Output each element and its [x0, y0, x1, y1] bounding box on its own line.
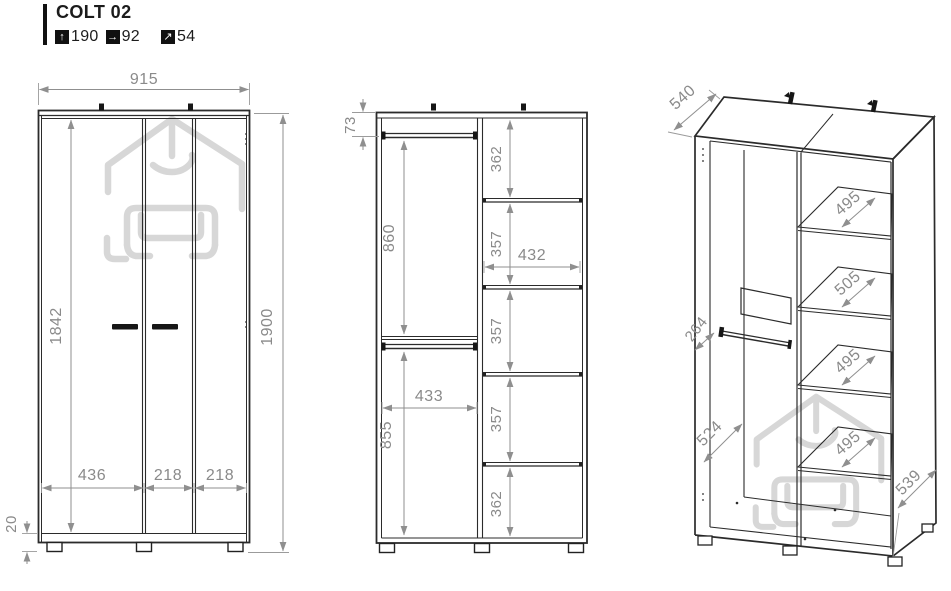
feet [47, 543, 243, 552]
dim-doors: 436 218 218 [42, 467, 247, 493]
dim-upper-height: 860 [381, 141, 404, 334]
dim-side-depth: 524 [694, 418, 742, 462]
dim-door3-label: 218 [206, 467, 234, 484]
top-pegs [784, 92, 878, 113]
dim-spacing-4: 357 [488, 406, 505, 433]
spec-depth-value: 54 [177, 28, 195, 46]
technical-drawing-page: COLT 02 ↑ 190 → 92 ↗ 54 [0, 0, 951, 591]
dim-bottom-depth-label: 539 [893, 467, 925, 499]
dim-interior-height: 1842 [48, 120, 71, 532]
dim-shelf-depths: 495 505 495 495 [832, 188, 875, 467]
dim-lower-height-label: 855 [378, 421, 395, 449]
dim-interior-height-label: 1842 [48, 307, 65, 345]
front-view: 915 1900 1842 436 218 218 [0, 55, 330, 591]
dim-rod-offset-label: 73 [342, 116, 359, 134]
dim-total-height-label: 1900 [259, 308, 276, 346]
spec-width: → 92 [106, 28, 140, 46]
title-rule [43, 4, 47, 45]
feet [698, 524, 933, 566]
dim-door2-label: 218 [154, 467, 182, 484]
dim-shelf3-label: 495 [832, 346, 864, 377]
dim-width-label: 915 [130, 71, 158, 88]
interior-cabinet-outline [377, 113, 588, 544]
dim-rod-depth: 264 [682, 314, 714, 350]
product-specs: ↑ 190 → 92 ↗ 54 [55, 28, 202, 46]
dim-rod-depth-label: 264 [682, 314, 712, 345]
dim-spacing-5: 362 [488, 491, 505, 518]
arrow-up-icon: ↑ [55, 30, 69, 44]
dim-shelf1-label: 495 [832, 188, 864, 219]
dim-width: 915 [39, 71, 250, 105]
brand-watermark-icon [107, 119, 242, 259]
dim-base-label: 20 [3, 515, 20, 533]
dim-spacing-1: 362 [488, 146, 505, 173]
arrow-up-right-icon: ↗ [161, 30, 175, 44]
dim-rod-width-label: 433 [415, 388, 443, 405]
dim-rod-width: 433 [382, 388, 477, 414]
spec-height-value: 190 [71, 28, 99, 46]
arrow-right-icon: → [106, 30, 120, 44]
dim-bottom-depth: 539 [893, 467, 936, 557]
top-pegs [99, 104, 193, 111]
spec-height: ↑ 190 [55, 28, 99, 46]
interior-view: 73 860 855 433 432 362 [330, 55, 650, 591]
dim-rod-offset: 73 [342, 99, 379, 150]
dim-shelf-width-label: 432 [518, 247, 546, 264]
brand-watermark-icon [756, 397, 882, 527]
dim-top-depth-label: 540 [667, 82, 699, 114]
product-title: COLT 02 [56, 2, 131, 23]
spec-depth: ↗ 54 [161, 28, 195, 46]
top-pegs [431, 104, 526, 111]
perspective-view: 540 264 524 539 495 505 495 495 [650, 55, 951, 591]
dim-shelf-spacings: 362 357 357 357 362 [488, 121, 510, 537]
spec-width-value: 92 [122, 28, 140, 46]
feet [380, 544, 584, 553]
dim-top-depth: 540 [667, 82, 720, 137]
dim-base: 20 [3, 515, 37, 564]
hanging-rod-3d [718, 288, 792, 349]
dim-upper-height-label: 860 [381, 224, 398, 252]
dim-total-height: 1900 [248, 114, 289, 553]
dim-door1-label: 436 [78, 467, 106, 484]
dim-spacing-2: 357 [488, 231, 505, 258]
dim-shelf2-label: 505 [832, 268, 864, 299]
dim-spacing-3: 357 [488, 318, 505, 345]
